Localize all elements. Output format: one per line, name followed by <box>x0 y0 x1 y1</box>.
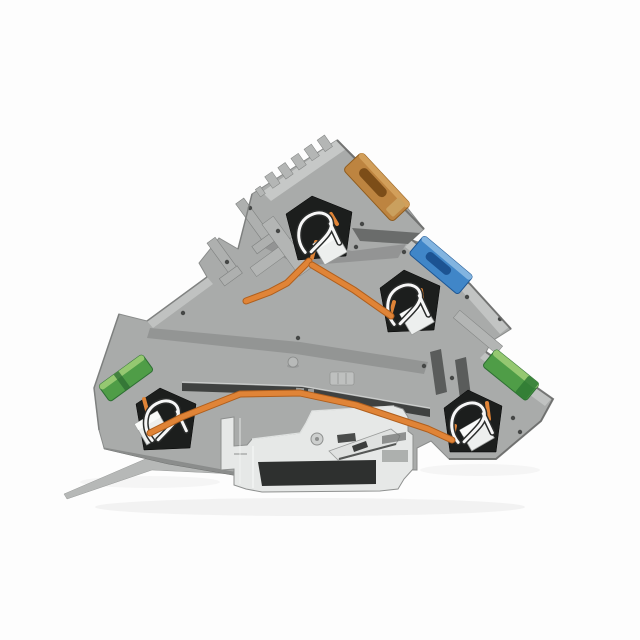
terminal-block-photo <box>0 0 640 640</box>
groove-rib <box>330 372 354 385</box>
center-stud <box>287 357 299 368</box>
din-rail-slot <box>258 460 376 486</box>
product-photo: Gray multi-level DIN-rail terminal block… <box>0 0 640 640</box>
